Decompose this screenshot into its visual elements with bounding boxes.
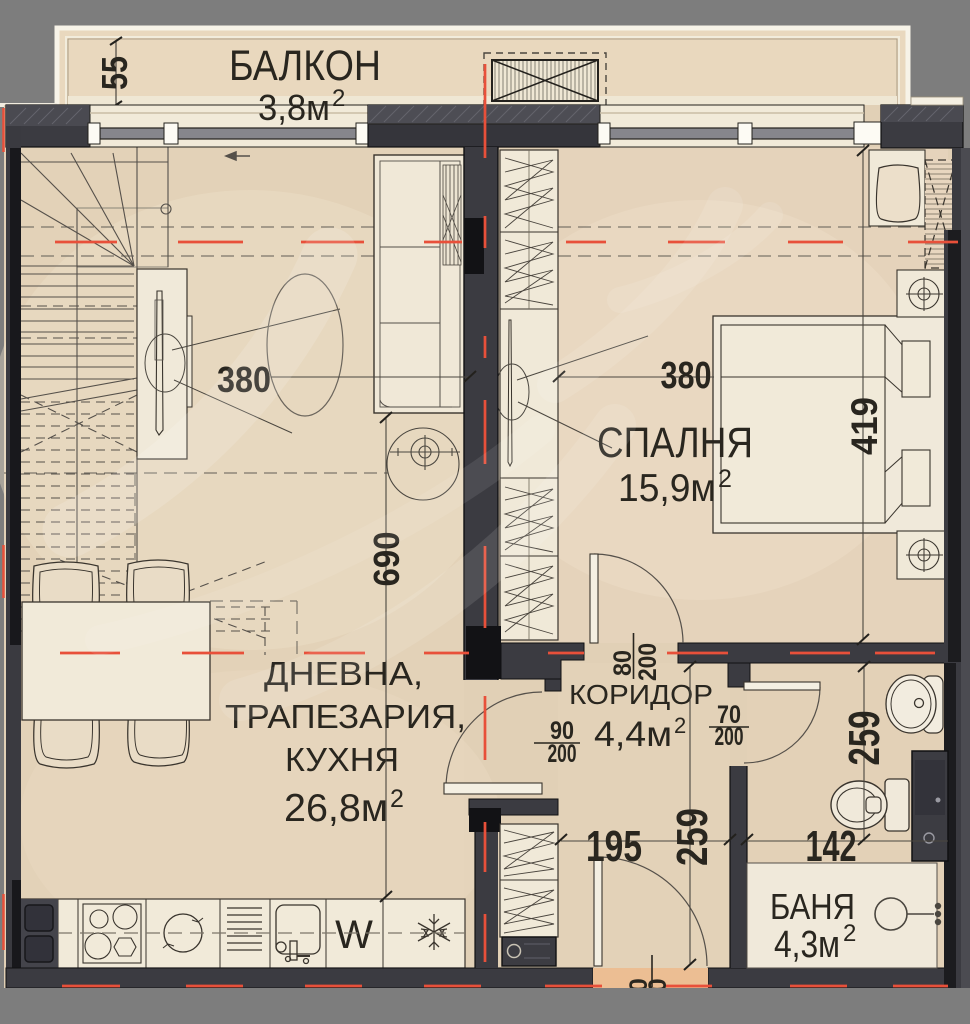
svg-text:142: 142 bbox=[806, 822, 857, 871]
svg-text:26,8м: 26,8м bbox=[284, 787, 388, 830]
svg-text:259: 259 bbox=[840, 711, 889, 766]
svg-text:2: 2 bbox=[718, 465, 732, 493]
svg-text:200: 200 bbox=[548, 740, 577, 768]
svg-text:3,8м: 3,8м bbox=[258, 87, 330, 128]
svg-text:КУХНЯ: КУХНЯ bbox=[285, 741, 399, 778]
svg-text:W: W bbox=[335, 913, 373, 957]
svg-text:259: 259 bbox=[668, 808, 717, 866]
svg-text:КОРИДОР: КОРИДОР bbox=[569, 679, 713, 710]
svg-text:380: 380 bbox=[661, 355, 712, 397]
svg-text:4,4м: 4,4м bbox=[594, 715, 672, 754]
svg-text:2: 2 bbox=[332, 85, 345, 112]
svg-text:БАЛКОН: БАЛКОН bbox=[229, 42, 381, 90]
svg-text:2: 2 bbox=[843, 920, 856, 947]
svg-text:15,9м: 15,9м bbox=[618, 467, 716, 510]
svg-text:55: 55 bbox=[94, 56, 135, 90]
svg-text:419: 419 bbox=[844, 397, 885, 455]
svg-text:2: 2 bbox=[390, 785, 404, 813]
svg-text:2: 2 bbox=[674, 713, 686, 738]
svg-text:200: 200 bbox=[634, 643, 662, 681]
svg-text:4,3м: 4,3м bbox=[774, 924, 840, 966]
svg-text:195: 195 bbox=[586, 822, 642, 871]
